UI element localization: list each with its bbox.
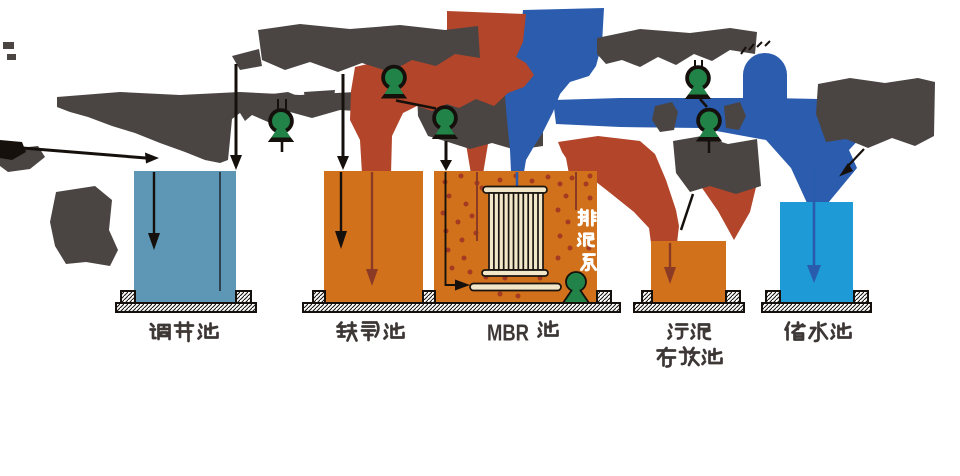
svg-text:MBR: MBR [487, 320, 529, 346]
